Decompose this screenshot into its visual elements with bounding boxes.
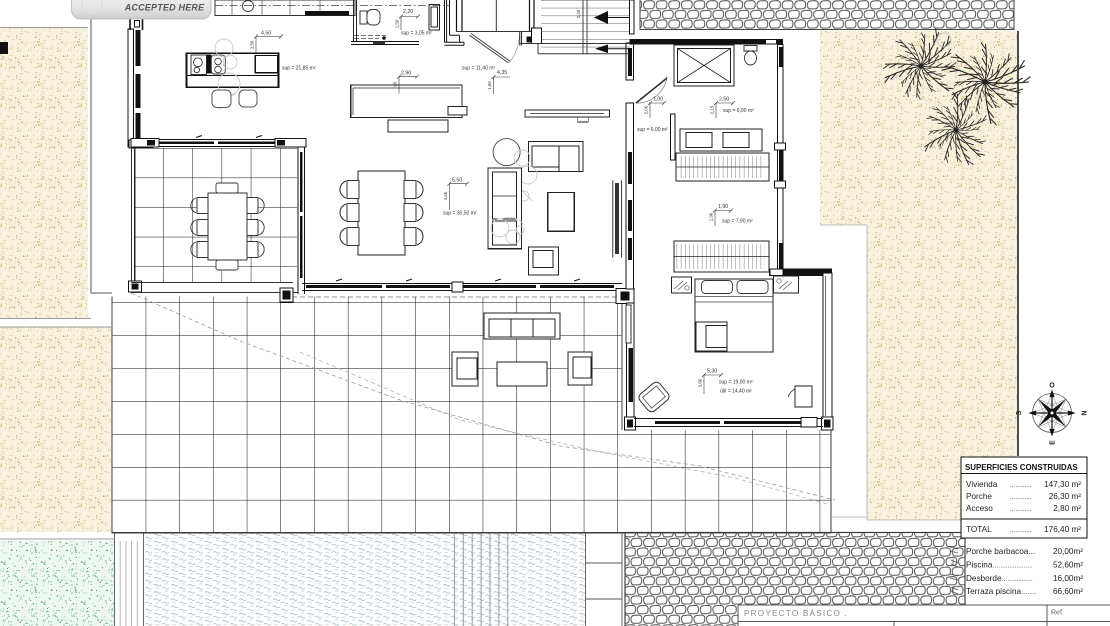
svg-text:147,30 m²: 147,30 m² bbox=[1044, 480, 1081, 489]
svg-text:2,20: 2,20 bbox=[403, 9, 413, 15]
svg-text:sup = 11,40 m²: sup = 11,40 m² bbox=[462, 66, 495, 72]
svg-text:4,60: 4,60 bbox=[443, 191, 448, 200]
svg-text:2,15: 2,15 bbox=[710, 105, 715, 114]
svg-text:ACCEPTED HERE: ACCEPTED HERE bbox=[124, 3, 205, 13]
svg-text:sup = 35,50 m²: sup = 35,50 m² bbox=[443, 211, 477, 217]
svg-text:2,20: 2,20 bbox=[576, 9, 581, 18]
svg-text:SUPERFICIES CONSTRUIDAS: SUPERFICIES CONSTRUIDAS bbox=[965, 463, 1078, 472]
svg-text:1,90: 1,90 bbox=[718, 204, 728, 210]
svg-text:......................: ...................... bbox=[993, 563, 1033, 570]
svg-text:4,35: 4,35 bbox=[497, 70, 507, 76]
svg-text:66,60m²: 66,60m² bbox=[1053, 587, 1083, 596]
svg-text:............: ............ bbox=[1010, 482, 1032, 489]
svg-text:5,50: 5,50 bbox=[452, 178, 462, 184]
svg-text:Porche barbacoa...: Porche barbacoa... bbox=[966, 547, 1035, 556]
svg-text:5,30: 5,30 bbox=[707, 369, 717, 375]
svg-text:TOTAL: TOTAL bbox=[966, 525, 992, 534]
svg-text:Piscina: Piscina bbox=[966, 561, 993, 570]
svg-text:Ref.: Ref. bbox=[1051, 610, 1064, 617]
svg-text:2,00: 2,00 bbox=[644, 105, 649, 114]
svg-text:2,50: 2,50 bbox=[719, 97, 729, 103]
svg-text:3,56: 3,56 bbox=[250, 40, 255, 49]
svg-text:16,00m²: 16,00m² bbox=[1053, 574, 1083, 583]
svg-text:Porche: Porche bbox=[966, 492, 992, 501]
svg-text:3,80: 3,80 bbox=[698, 378, 703, 387]
svg-text:26,30 m²: 26,30 m² bbox=[1049, 492, 1082, 501]
svg-text:PROYECTO BÁSICO .: PROYECTO BÁSICO . bbox=[744, 608, 848, 618]
svg-text:útil = 14,40 m²: útil = 14,40 m² bbox=[720, 389, 752, 395]
svg-text:............: ............ bbox=[1010, 494, 1032, 501]
svg-text:........: ........ bbox=[1022, 589, 1037, 596]
svg-text:1,90: 1,90 bbox=[709, 212, 714, 221]
svg-text:176,40 m²: 176,40 m² bbox=[1044, 525, 1081, 534]
svg-text:............: ............ bbox=[1010, 506, 1032, 513]
svg-text:.................: ................. bbox=[1002, 576, 1033, 583]
svg-text:1,60: 1,60 bbox=[487, 81, 492, 90]
svg-text:S: S bbox=[1016, 410, 1023, 415]
svg-text:Acceso: Acceso bbox=[966, 504, 993, 513]
svg-text:4,50: 4,50 bbox=[261, 31, 271, 37]
svg-text:sup = 7,90 m²: sup = 7,90 m² bbox=[722, 219, 753, 225]
svg-text:1,50: 1,50 bbox=[395, 19, 400, 28]
svg-text:sup = 6,90 m²: sup = 6,90 m² bbox=[723, 108, 754, 114]
svg-text:sup = 21,85 m²: sup = 21,85 m² bbox=[282, 66, 316, 72]
svg-text:Desborde: Desborde bbox=[966, 574, 1002, 583]
svg-text:20,00m²: 20,00m² bbox=[1053, 547, 1083, 556]
svg-text:1,00: 1,00 bbox=[653, 97, 663, 103]
svg-text:N: N bbox=[1080, 410, 1087, 415]
svg-text:E: E bbox=[1050, 440, 1057, 445]
svg-text:52,60m²: 52,60m² bbox=[1053, 561, 1083, 570]
svg-text:............: ............ bbox=[1010, 527, 1032, 534]
svg-text:65: 65 bbox=[393, 81, 398, 86]
svg-text:sup = 3,05 m²: sup = 3,05 m² bbox=[401, 31, 432, 37]
svg-text:sup = 6,00 m²: sup = 6,00 m² bbox=[637, 127, 668, 133]
svg-text:sup = 19,00 m²: sup = 19,00 m² bbox=[719, 380, 753, 386]
svg-text:Terraza piscina: Terraza piscina bbox=[966, 587, 1022, 596]
svg-text:Vivienda: Vivienda bbox=[966, 480, 998, 489]
svg-text:2,90: 2,90 bbox=[401, 71, 411, 77]
svg-text:O: O bbox=[1049, 383, 1055, 390]
svg-text:2,80 m²: 2,80 m² bbox=[1053, 504, 1081, 513]
